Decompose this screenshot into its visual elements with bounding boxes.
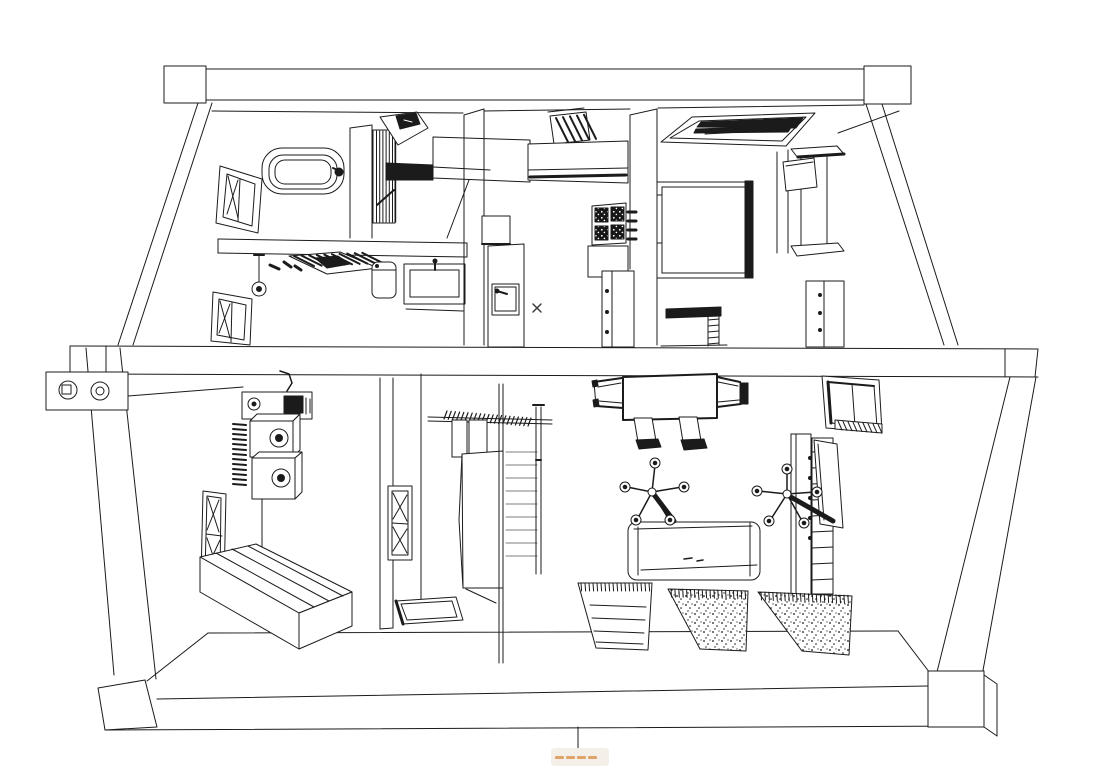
entry-stairs [380, 374, 552, 663]
bedroom [657, 113, 844, 347]
dining-set [592, 374, 748, 450]
floor-hatches [578, 583, 852, 655]
canvas-area: two-storey house cut-away wireframe draw… [0, 0, 1105, 768]
page-indicator [551, 748, 609, 766]
house-cutaway-drawing: two-storey house cut-away wireframe draw… [0, 0, 1105, 768]
right-wall-unit [791, 376, 882, 597]
